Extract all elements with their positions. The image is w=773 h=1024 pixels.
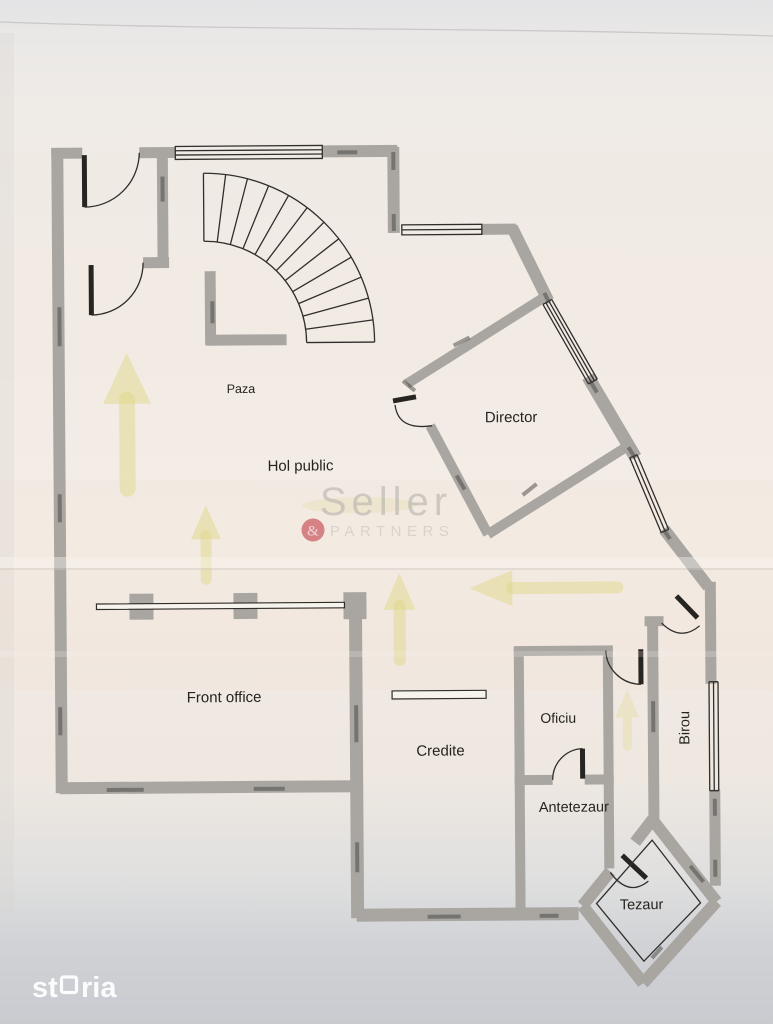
front-office-counter bbox=[96, 602, 344, 609]
room-label-credite: Credite bbox=[416, 742, 464, 759]
watermark-ampersand: & bbox=[307, 524, 319, 540]
watermark-subtitle: PARTNERS bbox=[330, 523, 454, 540]
room-label-oficiu: Oficiu bbox=[540, 710, 576, 726]
watermark-brand: Seller bbox=[320, 480, 452, 524]
room-label-tezaur: Tezaur bbox=[620, 897, 664, 913]
credite-counter bbox=[392, 690, 486, 699]
room-label-director: Director bbox=[485, 409, 538, 426]
floor-plan-photo: Paza Hol public Director Front office Cr… bbox=[0, 0, 773, 1024]
room-label-birou: Birou bbox=[677, 711, 693, 745]
room-label-hol-public: Hol public bbox=[267, 457, 333, 474]
room-label-front-office: Front office bbox=[187, 689, 262, 707]
room-label-antetezaur: Antetezaur bbox=[539, 799, 609, 815]
counter-corner-block bbox=[343, 592, 366, 619]
room-label-paza: Paza bbox=[227, 382, 256, 396]
